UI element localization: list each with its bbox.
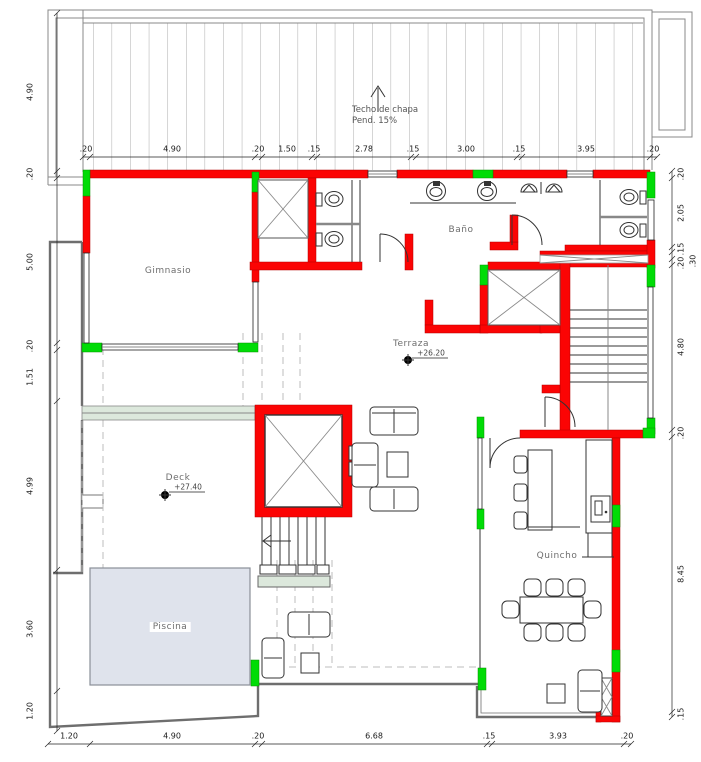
- dim-bottom-3: 6.68: [365, 732, 383, 741]
- stair-west: [258, 517, 330, 587]
- dim-right-3: .20: [677, 257, 686, 270]
- dim-top-10: .20: [647, 145, 660, 154]
- dim-top-8: .15: [513, 145, 526, 154]
- dim-right-6: .20: [677, 427, 686, 440]
- dim-right-4: .30: [689, 255, 698, 268]
- dim-bottom-5: 3.93: [549, 732, 567, 741]
- toilet-icon: [620, 190, 646, 238]
- dim-right-0: .20: [677, 168, 686, 181]
- dim-left-7: 1.20: [26, 702, 35, 720]
- dim-left-6: 3.60: [26, 620, 35, 638]
- plan-drawing: [0, 0, 701, 762]
- dim-left-0: 4.90: [26, 83, 35, 101]
- dim-left-1: .20: [26, 168, 35, 181]
- corner-window-x: [601, 678, 612, 716]
- dim-top-9: 3.95: [577, 145, 595, 154]
- grill: [582, 440, 614, 557]
- roof-note-line1: Techo de chapa: [352, 105, 418, 115]
- dim-left-2: 5.00: [26, 253, 35, 271]
- dim-top-1: 4.90: [163, 145, 181, 154]
- dim-bottom-6: .20: [621, 732, 634, 741]
- duct-shaft-1: [258, 180, 308, 238]
- dim-top-4: .15: [308, 145, 321, 154]
- room-label-quincho: Quincho: [537, 551, 578, 561]
- floor-plan: Gimnasio Baño Terraza +26.20 Deck +27.40…: [0, 0, 701, 762]
- dim-top-6: .15: [407, 145, 420, 154]
- dim-right-7: 8.45: [677, 565, 686, 583]
- quincho-furniture: [502, 440, 614, 712]
- shower-icon: [521, 182, 562, 194]
- toilet-icon: [316, 192, 343, 247]
- dim-top-7: 3.00: [457, 145, 475, 154]
- sink-icon: [427, 181, 497, 201]
- beam-x: [540, 255, 648, 263]
- dim-top-2: .20: [252, 145, 265, 154]
- dim-right-5: 4.80: [677, 338, 686, 356]
- dim-right-2: .15: [677, 243, 686, 256]
- room-label-gimnasio: Gimnasio: [145, 266, 191, 276]
- dim-left-4: 1.51: [26, 368, 35, 386]
- dim-bottom-1: 4.90: [163, 732, 181, 741]
- room-label-deck: Deck: [166, 473, 191, 483]
- room-label-bano: Baño: [449, 225, 474, 235]
- stair-east: [570, 265, 647, 430]
- dim-right-8: .15: [677, 708, 686, 721]
- dining-set: [502, 579, 601, 641]
- deck-edge-band: [82, 406, 255, 420]
- duct-shaft-2: [488, 270, 560, 325]
- roof-note-line2: Pend. 15%: [352, 116, 397, 126]
- dim-top-0: .20: [80, 145, 93, 154]
- dim-left-3: .20: [26, 340, 35, 353]
- level-terraza: +26.20: [417, 349, 445, 358]
- dim-bottom-0: 1.20: [60, 732, 78, 741]
- dim-right-1: 2.05: [677, 204, 686, 222]
- level-deck: +27.40: [174, 483, 202, 492]
- dim-bottom-2: .20: [252, 732, 265, 741]
- dim-top-5: 2.78: [355, 145, 373, 154]
- dim-left-5: 4.99: [26, 477, 35, 495]
- room-label-piscina: Piscina: [150, 622, 191, 632]
- room-label-terraza: Terraza: [393, 339, 429, 349]
- dim-bottom-4: .15: [483, 732, 496, 741]
- dim-top-3: 1.50: [278, 145, 296, 154]
- roof-outline: [48, 10, 692, 185]
